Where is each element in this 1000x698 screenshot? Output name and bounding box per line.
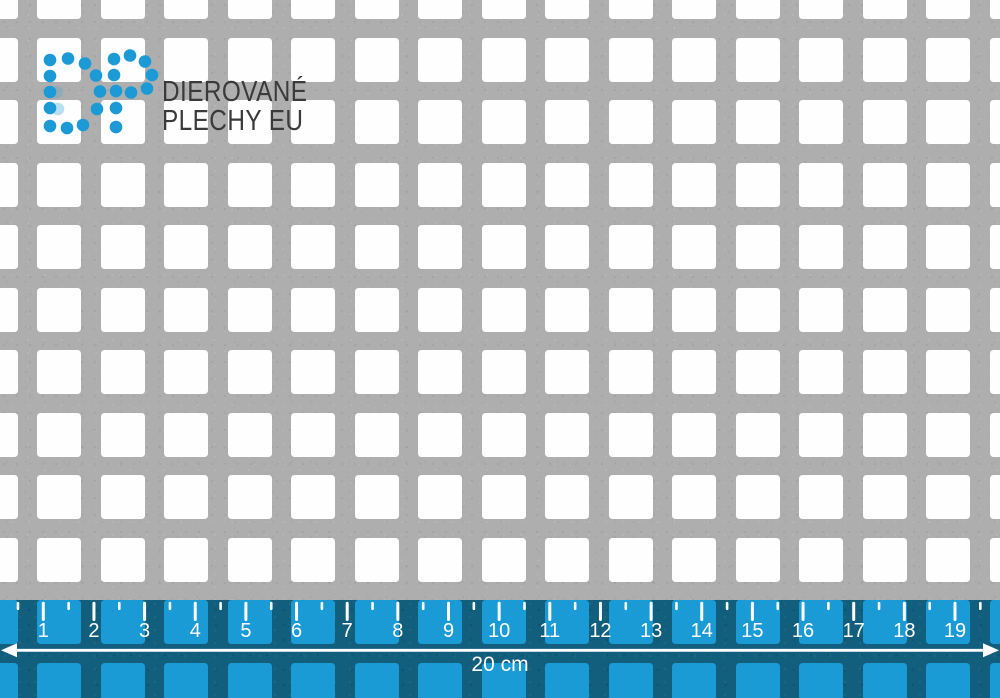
ruler-tick-label: 8	[392, 620, 403, 642]
logo-dot	[124, 49, 137, 62]
logo-dot	[94, 85, 107, 98]
logo-dot	[110, 121, 123, 134]
perforated-sheet-photo: DIEROVANÉ PLECHY EU 12345678910111213141…	[0, 0, 1000, 698]
logo-dot	[44, 86, 57, 99]
ruler-tick-label: 2	[88, 620, 99, 642]
logo-dot	[91, 103, 104, 116]
logo-dot	[110, 102, 123, 115]
logo-dot	[44, 102, 57, 115]
brand-name-line1: DIEROVANÉ	[162, 78, 307, 107]
ruler-tick-label: 13	[640, 620, 662, 642]
ruler-marks: 12345678910111213141516171819	[0, 600, 1000, 698]
ruler-tick-label: 4	[190, 620, 201, 642]
brand-name-line2: PLECHY EU	[162, 107, 303, 136]
logo-dot	[79, 57, 92, 70]
ruler-tick-label: 18	[893, 620, 915, 642]
ruler-tick-label: 9	[443, 620, 454, 642]
ruler-tick-label: 7	[342, 620, 353, 642]
logo-dp-dots-icon	[0, 0, 1000, 698]
ruler-tick-label: 10	[488, 620, 510, 642]
logo-dot	[62, 52, 75, 65]
ruler-tick-label: 1	[38, 620, 49, 642]
logo-dot	[90, 69, 103, 82]
logo-dot	[110, 85, 123, 98]
logo-dot	[77, 119, 90, 132]
ruler-tick-label: 19	[944, 620, 966, 642]
logo-dot	[44, 120, 57, 133]
ruler-tick-label: 14	[691, 620, 713, 642]
ruler-tick-label: 17	[843, 620, 865, 642]
ruler-tick-label: 11	[539, 620, 560, 642]
logo-dot	[108, 69, 121, 82]
ruler-tick-label: 3	[139, 620, 150, 642]
logo-dot	[139, 55, 152, 68]
logo-dot	[125, 86, 138, 99]
logo-dot	[146, 69, 159, 82]
ruler-tick-label: 6	[291, 620, 302, 642]
ruler-tick-label: 15	[741, 620, 763, 642]
logo-dot	[44, 70, 57, 83]
logo-dot	[61, 122, 74, 135]
ruler-tick-label: 5	[240, 620, 251, 642]
logo-dot	[44, 54, 57, 67]
logo-dot	[108, 53, 121, 66]
ruler-tick-label: 16	[792, 620, 814, 642]
ruler-tick-label: 12	[589, 620, 611, 642]
logo-dot	[141, 82, 154, 95]
ruler-length-label: 20 cm	[0, 653, 1000, 676]
